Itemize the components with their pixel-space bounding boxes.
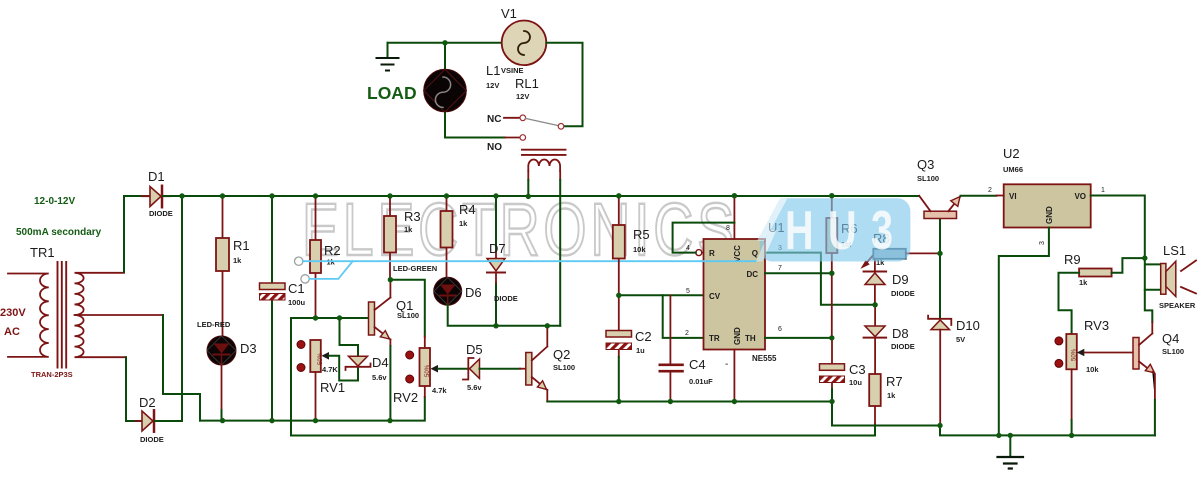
svg-text:R7: R7 xyxy=(886,374,903,389)
svg-text:SL100: SL100 xyxy=(553,363,575,372)
svg-text:5.6v: 5.6v xyxy=(372,373,387,382)
svg-text:7: 7 xyxy=(778,265,782,272)
svg-text:R5: R5 xyxy=(633,227,650,242)
svg-text:R9: R9 xyxy=(1064,252,1081,267)
svg-text:NO: NO xyxy=(487,142,502,153)
svg-text:TR: TR xyxy=(709,334,720,343)
svg-text:50%: 50% xyxy=(318,352,324,365)
svg-text:GND: GND xyxy=(733,327,742,345)
svg-text:L1: L1 xyxy=(486,63,500,78)
svg-text:R1: R1 xyxy=(233,238,250,253)
svg-text:4: 4 xyxy=(686,245,690,252)
svg-text:TR1: TR1 xyxy=(30,245,55,260)
svg-text:50%: 50% xyxy=(1072,348,1078,361)
svg-text:10u: 10u xyxy=(849,378,862,387)
svg-text:Q: Q xyxy=(752,249,758,258)
svg-text:D7: D7 xyxy=(489,241,506,256)
svg-text:VO: VO xyxy=(1074,192,1086,201)
svg-text:SL100: SL100 xyxy=(1162,347,1184,356)
svg-text:D4: D4 xyxy=(372,355,389,370)
svg-text:NC: NC xyxy=(487,114,501,125)
svg-text:5V: 5V xyxy=(956,335,965,344)
svg-text:1k: 1k xyxy=(404,225,413,234)
svg-text:3: 3 xyxy=(1039,241,1046,245)
svg-text:R: R xyxy=(709,249,715,258)
svg-text:LED-GREEN: LED-GREEN xyxy=(393,264,437,273)
svg-text:0.01uF: 0.01uF xyxy=(689,377,713,386)
svg-text:Q4: Q4 xyxy=(1162,331,1179,346)
svg-text:100u: 100u xyxy=(288,298,306,307)
svg-text:RL1: RL1 xyxy=(515,76,539,91)
svg-text:UM66: UM66 xyxy=(1003,165,1023,174)
svg-text:1k: 1k xyxy=(459,219,468,228)
svg-text:DIODE: DIODE xyxy=(140,435,164,444)
svg-text:10k: 10k xyxy=(1086,365,1099,374)
svg-text:NE555: NE555 xyxy=(752,354,777,363)
svg-text:1k: 1k xyxy=(233,256,242,265)
svg-text:D3: D3 xyxy=(240,341,257,356)
svg-text:TRAN-2P3S: TRAN-2P3S xyxy=(31,370,73,379)
svg-text:D6: D6 xyxy=(465,285,482,300)
svg-text:GND: GND xyxy=(1045,206,1054,224)
svg-text:12V: 12V xyxy=(516,92,529,101)
svg-text:TH: TH xyxy=(745,334,756,343)
svg-text:VI: VI xyxy=(1009,192,1017,201)
svg-text:U2: U2 xyxy=(1003,146,1020,161)
svg-text:C1: C1 xyxy=(288,281,305,296)
svg-text:8: 8 xyxy=(726,225,730,232)
svg-text:10k: 10k xyxy=(633,245,646,254)
svg-text:4.7K: 4.7K xyxy=(322,365,338,374)
svg-text:LS1: LS1 xyxy=(1163,243,1186,258)
svg-text:SL100: SL100 xyxy=(917,174,939,183)
svg-text:VSINE: VSINE xyxy=(501,66,524,75)
svg-text:C4: C4 xyxy=(689,357,706,372)
svg-text:D1: D1 xyxy=(148,169,165,184)
svg-text:230V: 230V xyxy=(0,307,26,319)
svg-text:V1: V1 xyxy=(501,6,517,21)
svg-text:5: 5 xyxy=(686,288,690,295)
svg-text:50%: 50% xyxy=(425,364,431,377)
svg-text:R2: R2 xyxy=(324,243,341,258)
svg-text:DIODE: DIODE xyxy=(891,289,915,298)
svg-text:D8: D8 xyxy=(892,326,909,341)
svg-text:VCC: VCC xyxy=(733,245,742,262)
svg-text:12-0-12V: 12-0-12V xyxy=(34,196,75,207)
svg-text:CV: CV xyxy=(709,292,721,301)
svg-text:2: 2 xyxy=(685,330,689,337)
svg-text:Q3: Q3 xyxy=(917,157,934,172)
svg-text:D9: D9 xyxy=(892,272,909,287)
svg-text:500mA secondary: 500mA secondary xyxy=(16,227,102,238)
svg-text:C3: C3 xyxy=(849,362,866,377)
svg-text:R3: R3 xyxy=(404,209,421,224)
svg-text:6: 6 xyxy=(778,326,782,333)
svg-text:5.6v: 5.6v xyxy=(467,383,482,392)
svg-text:D5: D5 xyxy=(466,342,483,357)
svg-text:1k: 1k xyxy=(887,391,896,400)
svg-text:1k: 1k xyxy=(1079,278,1088,287)
svg-text:LED-RED: LED-RED xyxy=(197,320,231,329)
svg-text:1: 1 xyxy=(1101,187,1105,194)
svg-text:DIODE: DIODE xyxy=(891,342,915,351)
svg-text:AC: AC xyxy=(4,326,20,338)
svg-text:RV2: RV2 xyxy=(393,390,418,405)
svg-text:DIODE: DIODE xyxy=(149,209,173,218)
svg-text:SPEAKER: SPEAKER xyxy=(1159,301,1196,310)
svg-text:12V: 12V xyxy=(486,81,499,90)
svg-text:LOAD: LOAD xyxy=(367,83,417,103)
svg-text:HU3: HU3 xyxy=(785,201,907,262)
svg-text:4.7k: 4.7k xyxy=(432,386,447,395)
svg-text:RV3: RV3 xyxy=(1084,318,1109,333)
svg-text:D2: D2 xyxy=(139,395,156,410)
svg-text:D10: D10 xyxy=(956,318,980,333)
svg-text:R4: R4 xyxy=(459,202,476,217)
svg-text:RV1: RV1 xyxy=(320,380,345,395)
svg-text:Q2: Q2 xyxy=(553,347,570,362)
svg-text:SL100: SL100 xyxy=(397,311,419,320)
svg-text:DC: DC xyxy=(746,270,758,279)
svg-text:1u: 1u xyxy=(636,346,645,355)
svg-text:C2: C2 xyxy=(635,329,652,344)
svg-text:DIODE: DIODE xyxy=(494,294,518,303)
svg-text:2: 2 xyxy=(988,187,992,194)
svg-text:-: - xyxy=(725,359,728,370)
